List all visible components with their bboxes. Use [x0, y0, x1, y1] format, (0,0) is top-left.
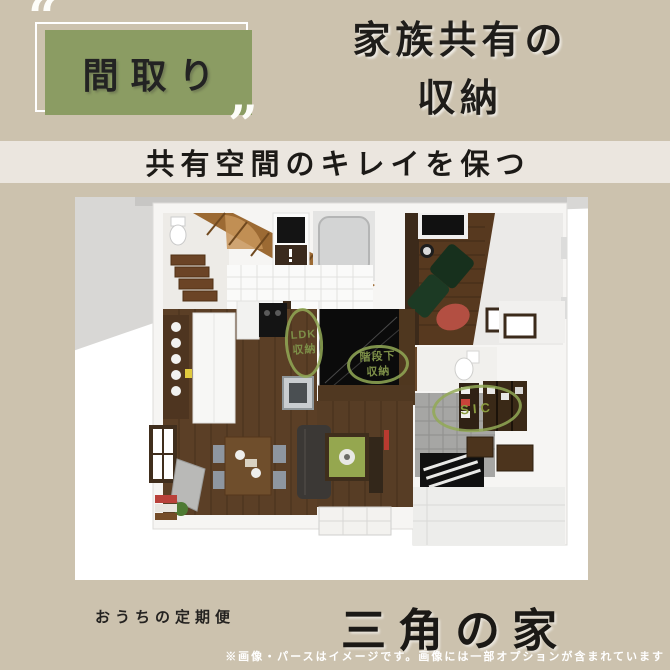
floorplan-render: [75, 197, 588, 580]
page-title: 家族共有の 収納: [340, 12, 580, 128]
floorplan-card: LDK 収納 階段下 収納 SIC: [75, 197, 588, 580]
right-landing: [499, 301, 565, 343]
brand-text: おうちの定期便: [95, 606, 235, 627]
desk: [422, 215, 464, 235]
page-title-line1: 家族共有の: [340, 12, 580, 70]
disclaimer-text: ※画像・パースはイメージです。画像には一部オプションが含まれています: [225, 648, 665, 664]
page-title-line2: 収納: [340, 70, 580, 128]
label-ldk-line2: 収納: [292, 342, 317, 358]
post-canvas: “ 間取り ” 家族共有の 収納 共有空間のキレイを保つ: [0, 0, 670, 670]
label-kaidan-line1: 階段下: [359, 349, 396, 366]
badge-label: 間取り: [82, 47, 226, 99]
laundry-unit: [273, 213, 309, 267]
label-sic-line1: SIC: [459, 398, 494, 418]
label-kaidan-line2: 収納: [366, 364, 391, 380]
floorplan-badge: 間取り: [45, 30, 252, 115]
veranda: [319, 507, 391, 535]
subtitle-banner: 共有空間のキレイを保つ: [0, 141, 670, 183]
subtitle-text: 共有空間のキレイを保つ: [145, 141, 530, 183]
